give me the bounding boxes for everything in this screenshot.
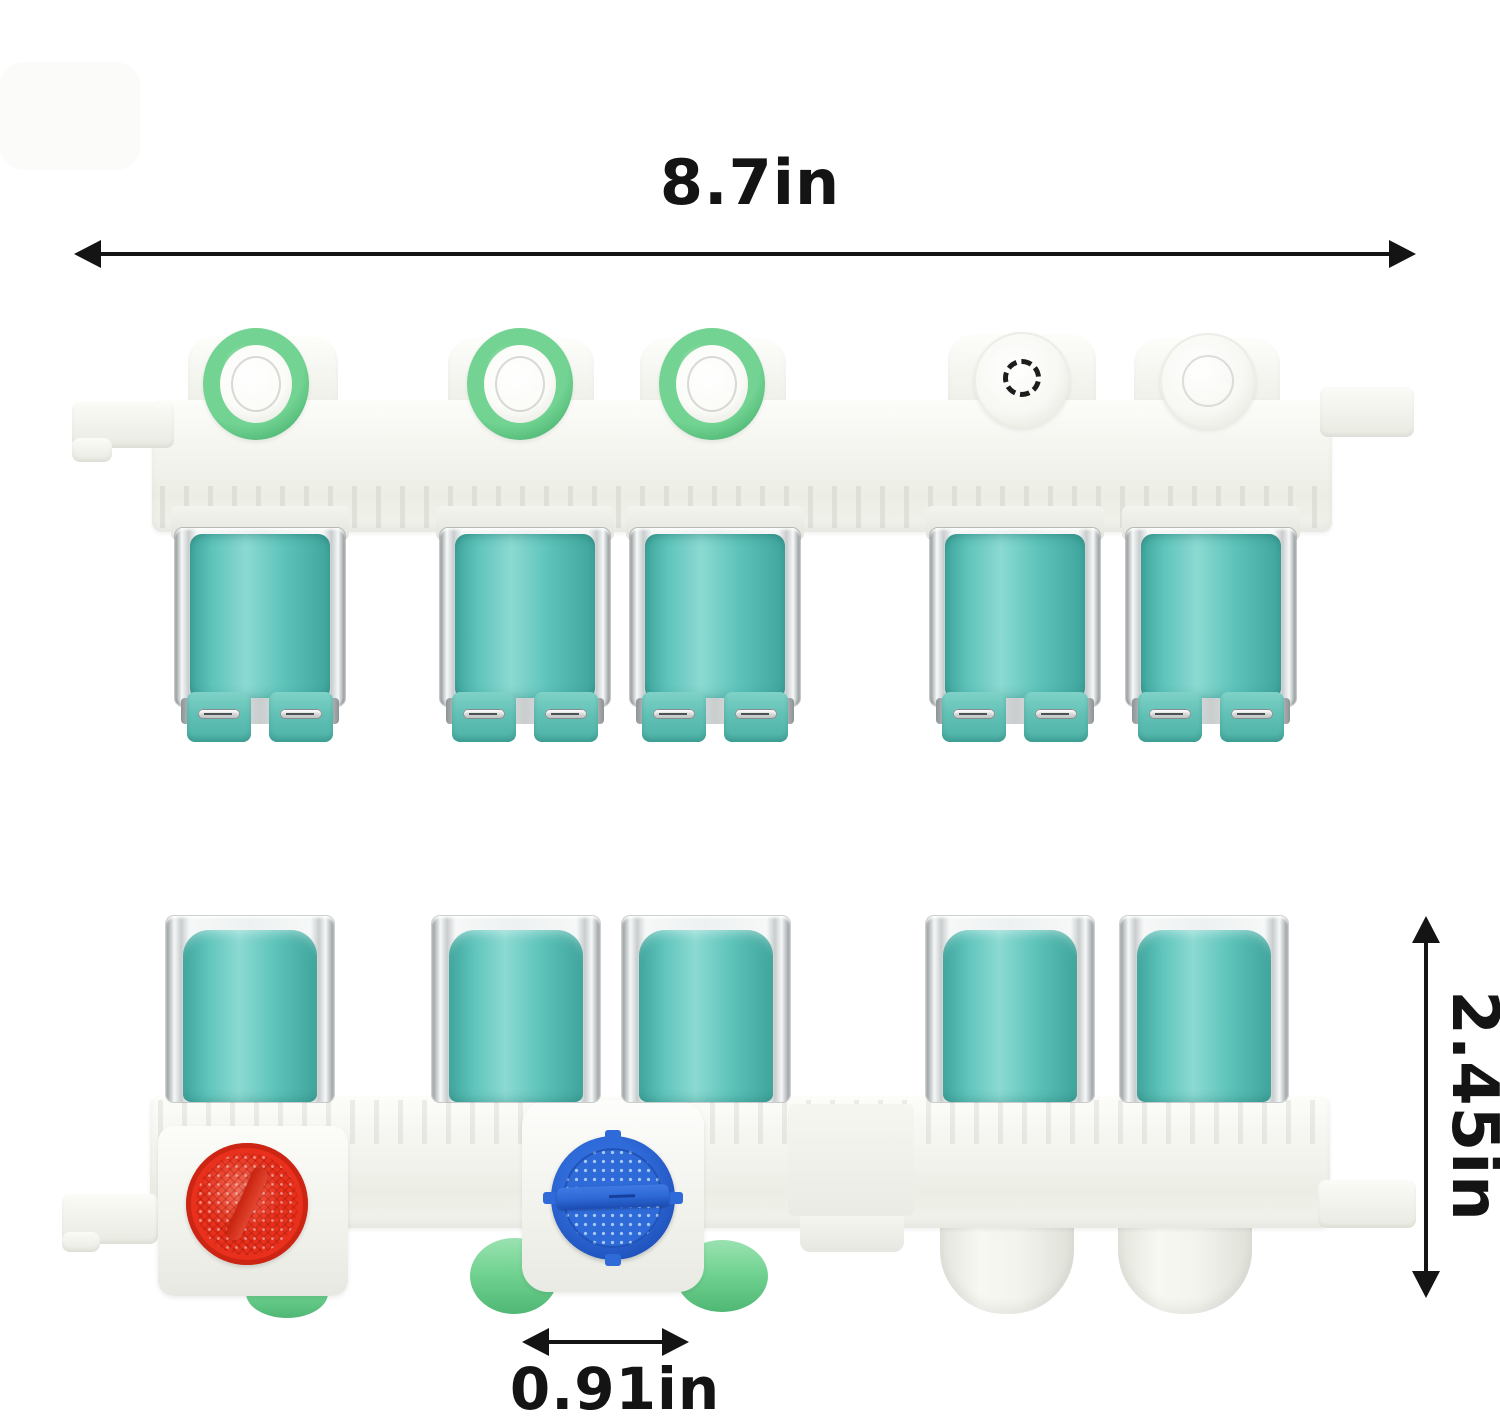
inlet-port-green — [203, 328, 309, 440]
port-white-marked — [974, 332, 1070, 428]
terminal-slot — [1231, 709, 1273, 719]
terminal-tab — [1024, 692, 1088, 742]
arrowhead-right-icon — [662, 1328, 689, 1356]
filter-notch — [667, 1192, 683, 1204]
filter-housing-cold — [522, 1100, 704, 1292]
solenoid-coil-body — [1137, 930, 1271, 1102]
terminal-tab — [452, 692, 516, 742]
solenoid-coil-body — [645, 534, 785, 700]
terminal-tab — [269, 692, 333, 742]
port-white — [1160, 333, 1256, 429]
terminal-slot — [735, 709, 777, 719]
solenoid-coil — [1126, 528, 1296, 743]
filter-screen-blue — [551, 1136, 675, 1260]
solenoid-coil-body — [183, 930, 317, 1102]
mounting-tab-left-step — [62, 1232, 100, 1252]
inlet-port-green — [467, 328, 573, 440]
height-dimension-line — [1424, 938, 1428, 1278]
port-spacing-line — [540, 1340, 670, 1344]
port-inner-ring — [1182, 355, 1234, 407]
product-image: 8.7in 2.45in 0.91in — [0, 0, 1500, 1423]
terminal-slot — [1149, 709, 1191, 719]
manifold-step — [800, 1216, 904, 1252]
terminal-tab — [534, 692, 598, 742]
solenoid-coil — [166, 916, 334, 1102]
port-inner-ring — [495, 356, 545, 412]
port-spacing-label: 0.91in — [465, 1360, 765, 1418]
width-dimension-line — [88, 252, 1404, 256]
inlet-port-green — [659, 328, 765, 440]
solenoid-coil — [175, 528, 345, 743]
terminal-slot — [953, 709, 995, 719]
arrowhead-up-icon — [1412, 916, 1440, 943]
faint-smudge — [0, 62, 140, 170]
dashed-circle-mark — [1003, 359, 1041, 397]
terminal-tab — [942, 692, 1006, 742]
solenoid-coil — [630, 528, 800, 743]
terminal-tab — [1220, 692, 1284, 742]
terminal-tab — [187, 692, 251, 742]
height-dimension-label: 2.45in — [1442, 956, 1500, 1256]
mounting-tab-right — [1318, 1180, 1416, 1228]
solenoid-coil-body — [190, 534, 330, 700]
filter-screen-red — [186, 1143, 308, 1265]
filter-handle — [557, 1184, 670, 1210]
solenoid-coil — [432, 916, 600, 1102]
terminal-slot — [280, 709, 322, 719]
solenoid-coil-body — [1141, 534, 1281, 700]
terminal-slot — [198, 709, 240, 719]
solenoid-coil-body — [455, 534, 595, 700]
filter-notch — [605, 1130, 621, 1142]
solenoid-coil-body — [639, 930, 773, 1102]
mounting-tab-right — [1320, 387, 1414, 437]
terminal-tab — [642, 692, 706, 742]
mounting-tab-left-step — [72, 438, 112, 462]
arrowhead-down-icon — [1412, 1271, 1440, 1298]
filter-housing-hot — [158, 1126, 348, 1296]
terminal-slot — [463, 709, 505, 719]
filter-notch — [605, 1254, 621, 1266]
terminal-slot — [653, 709, 695, 719]
solenoid-coil — [926, 916, 1094, 1102]
terminal-slot — [545, 709, 587, 719]
manifold-recess — [788, 1104, 914, 1216]
solenoid-coil-body — [943, 930, 1077, 1102]
terminal-slot — [1035, 709, 1077, 719]
port-inner-ring — [687, 356, 737, 412]
terminal-tab — [1138, 692, 1202, 742]
arrowhead-left-icon — [522, 1328, 549, 1356]
solenoid-coil — [930, 528, 1100, 743]
solenoid-coil — [440, 528, 610, 743]
width-dimension-label: 8.7in — [570, 152, 930, 214]
solenoid-coil — [622, 916, 790, 1102]
port-inner-ring — [231, 356, 281, 412]
arrowhead-right-icon — [1389, 240, 1416, 268]
solenoid-coil-body — [945, 534, 1085, 700]
arrowhead-left-icon — [74, 240, 101, 268]
solenoid-coil-body — [449, 930, 583, 1102]
terminal-tab — [724, 692, 788, 742]
solenoid-coil — [1120, 916, 1288, 1102]
